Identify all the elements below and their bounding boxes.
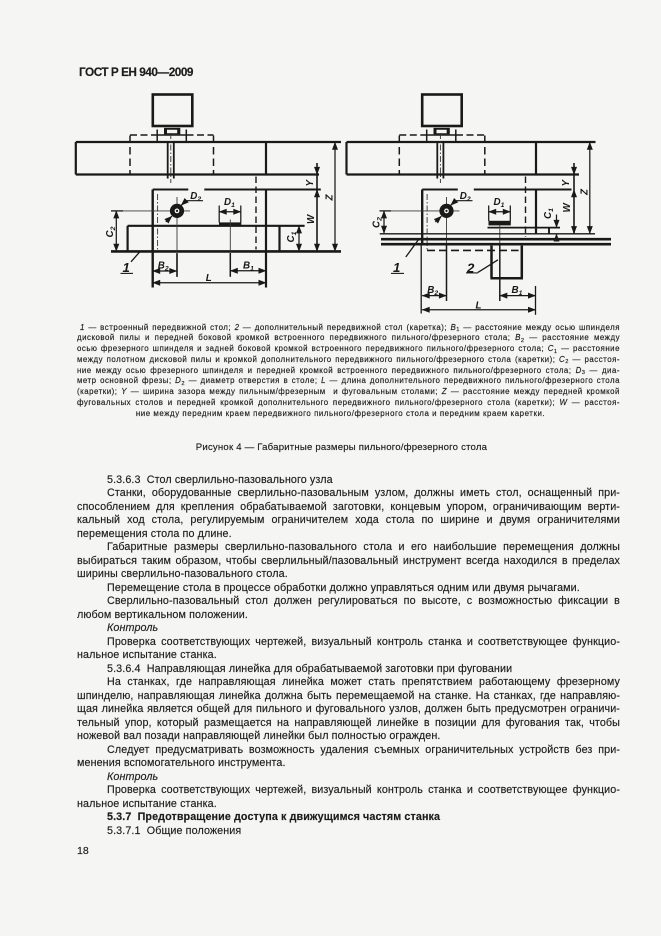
svg-text:D1: D1 bbox=[494, 197, 505, 209]
svg-text:W: W bbox=[306, 214, 317, 224]
svg-text:1: 1 bbox=[393, 260, 400, 275]
svg-text:B1: B1 bbox=[512, 285, 523, 297]
svg-text:C2: C2 bbox=[105, 226, 117, 237]
svg-text:B2: B2 bbox=[158, 261, 169, 273]
svg-text:Y: Y bbox=[305, 179, 316, 187]
svg-text:C1: C1 bbox=[286, 231, 298, 242]
svg-text:C1: C1 bbox=[543, 208, 555, 219]
svg-text:Z: Z bbox=[580, 188, 591, 196]
svg-text:B2: B2 bbox=[427, 285, 438, 297]
svg-text:W: W bbox=[562, 203, 573, 213]
svg-text:D1: D1 bbox=[224, 197, 235, 209]
svg-text:L: L bbox=[476, 301, 482, 312]
svg-text:1: 1 bbox=[123, 260, 130, 275]
svg-text:2: 2 bbox=[466, 261, 475, 276]
svg-text:Y: Y bbox=[561, 179, 572, 187]
svg-text:B1: B1 bbox=[243, 261, 254, 273]
svg-text:Z: Z bbox=[325, 194, 336, 202]
svg-text:C2: C2 bbox=[372, 217, 384, 228]
svg-text:L: L bbox=[206, 273, 212, 284]
